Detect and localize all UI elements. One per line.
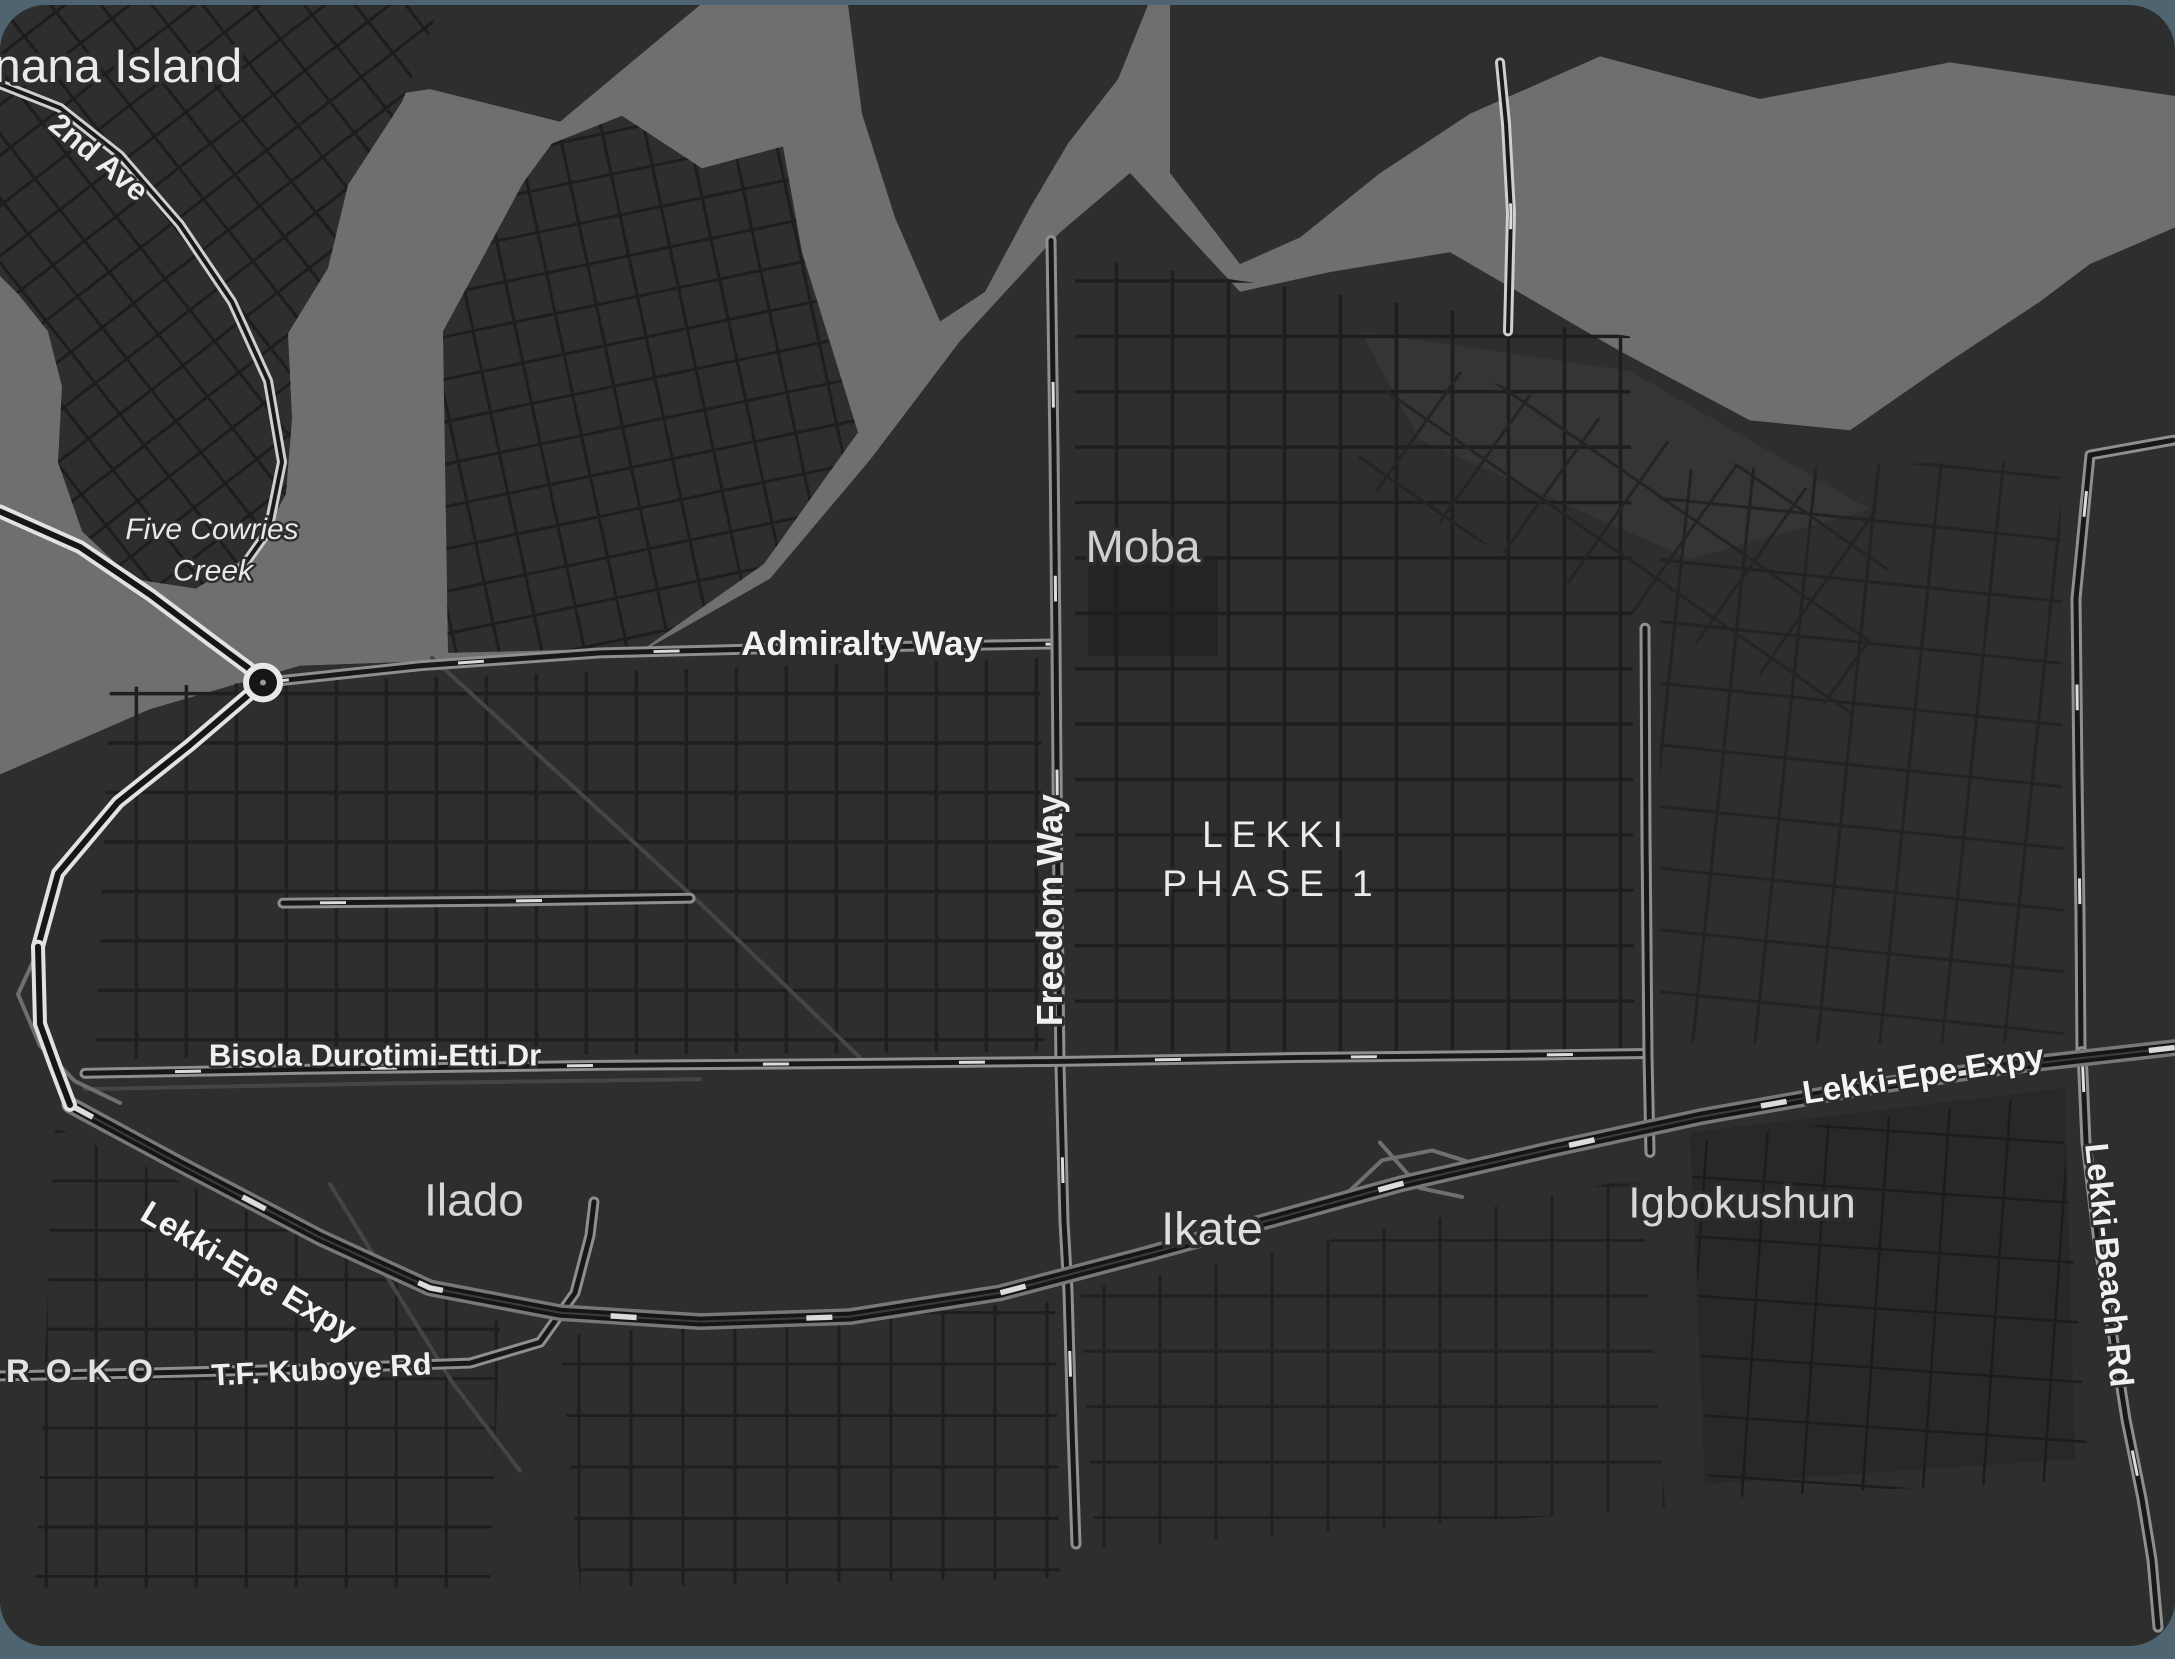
road-fola-osibo-road [283, 898, 690, 903]
map-label-lekki-phase1-a: LEKKI [1202, 814, 1352, 855]
map-label-five-cowries-2: Creek [173, 555, 255, 588]
road-vertical-1645 [1645, 628, 1650, 1152]
lekki-phase1-roundabout [246, 666, 280, 700]
map-label-admiralty-way: Admiralty Way [741, 624, 983, 663]
map-view[interactable]: nana Island2nd AveFive CowriesCreekMobaA… [0, 5, 2175, 1646]
map-label-freedom-way: Freedom Way [1030, 794, 1070, 1026]
map-label-lekki-phase1-b: PHASE 1 [1162, 863, 1381, 904]
map-label-five-cowries: Five Cowries [125, 513, 298, 546]
map-label-igbokushun: Igbokushun [1628, 1179, 1855, 1228]
map-label-banana-island: nana Island [0, 40, 242, 93]
map-svg[interactable]: nana Island2nd AveFive CowriesCreekMobaA… [0, 5, 2175, 1646]
map-label-ilado: Ilado [424, 1175, 524, 1226]
map-label-bisola-durotimi-etti-dr: Bisola Durotimi-Etti Dr [209, 1038, 541, 1073]
map-label-roko: ROKO [6, 1352, 169, 1389]
map-label-moba: Moba [1085, 521, 1201, 572]
map-label-ikate: Ikate [1161, 1203, 1263, 1255]
